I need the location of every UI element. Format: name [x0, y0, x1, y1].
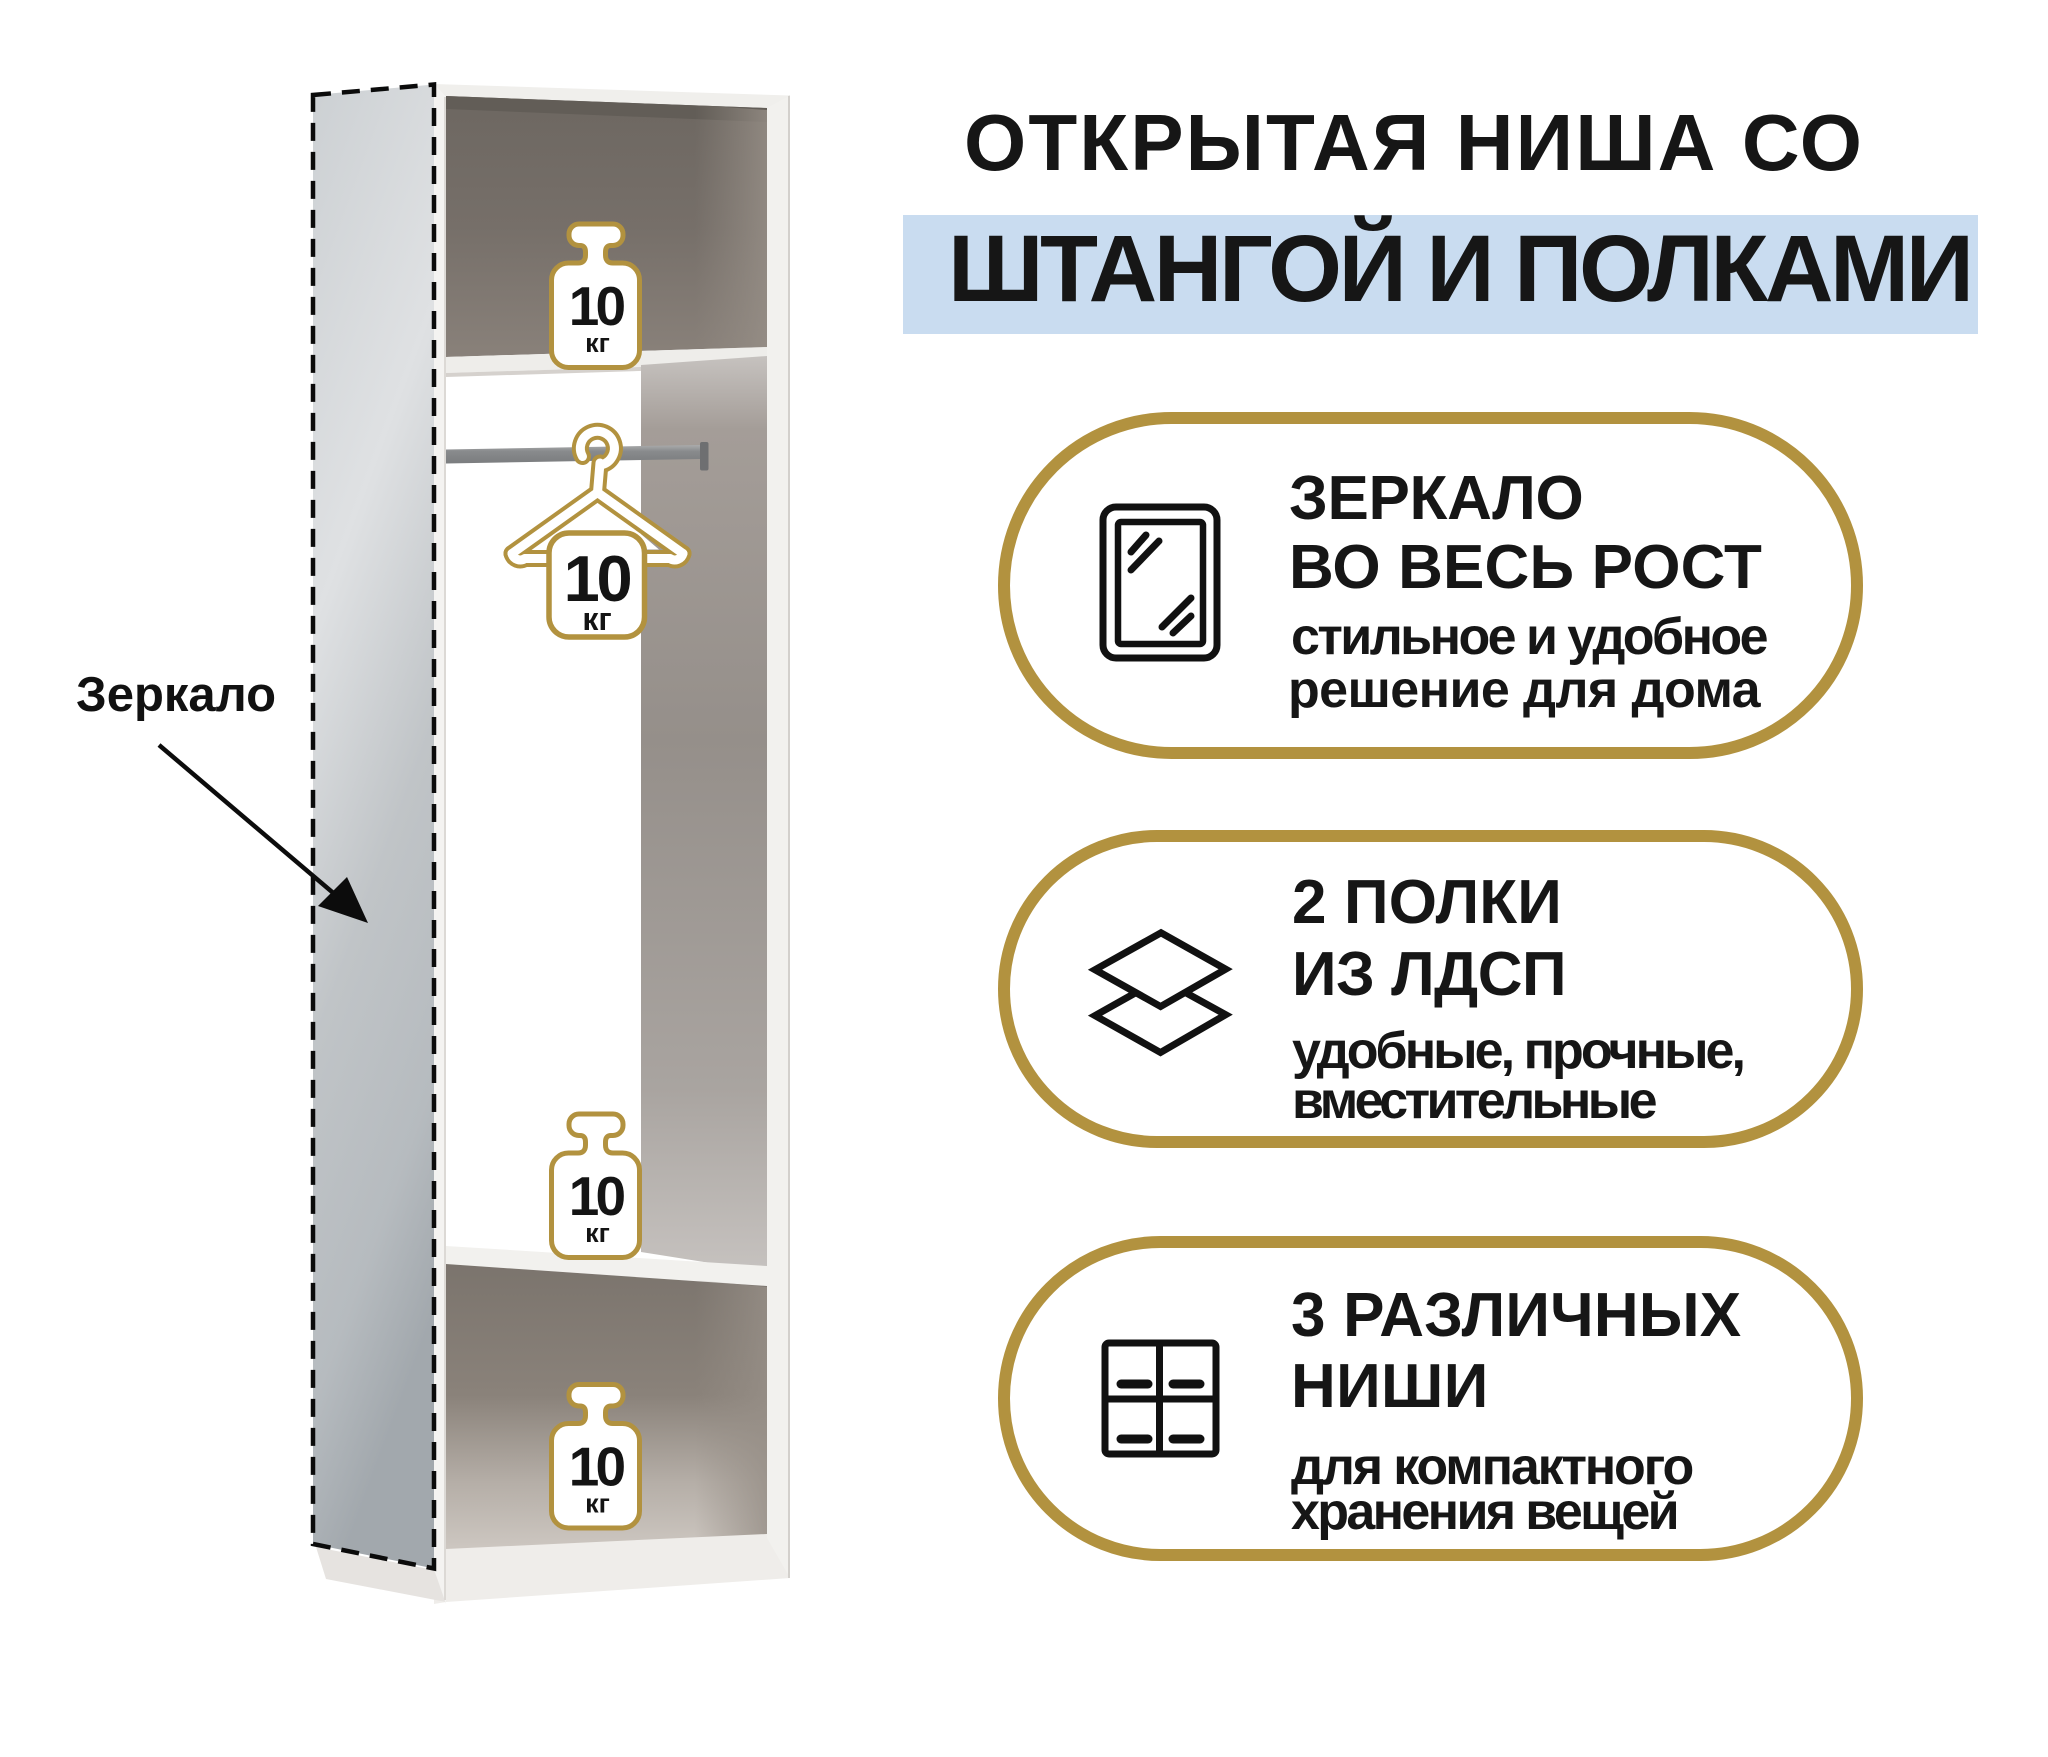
- svg-text:кг: кг: [582, 601, 611, 637]
- svg-text:кг: кг: [585, 328, 610, 358]
- svg-text:Зеркало: Зеркало: [76, 668, 276, 722]
